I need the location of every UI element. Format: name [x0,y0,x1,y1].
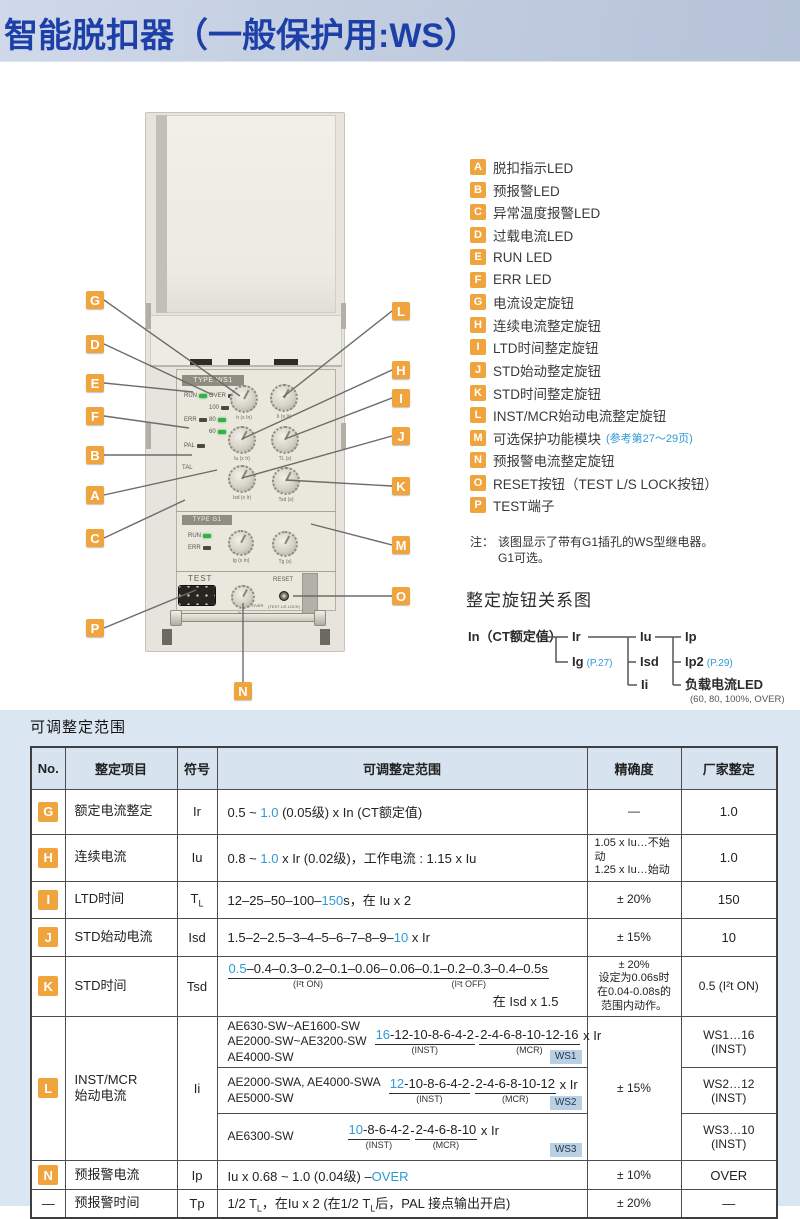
callout-chip-c: C [86,529,104,547]
knob-isd [228,465,256,493]
row-tp-accuracy: ± 20% [587,1190,681,1218]
legend-item-c: C异常温度报警LED [470,203,600,221]
g1-led-err: ERR [188,545,211,551]
side-notch [146,303,151,329]
type-g1-label: TYPE G1 [182,515,232,525]
table-row-j: J STD始动电流 Isd 1.5–2–2.5–3–4–5–6–7–8–9–10… [31,918,777,956]
row-h-no: H [31,834,65,881]
g1-err-led-indicator [203,546,211,550]
callout-chip-k: K [392,477,410,495]
table-row-i: I LTD时间 TL 12–25–50–100–150s，在 Iu x 2 ± … [31,881,777,918]
legend-label: LTD时间整定旋钮 [493,337,599,357]
legend-item-b: B预报警LED [470,181,560,199]
row-h-accuracy: 1.05 x Iu…不始动1.25 x Iu…始动 [587,834,681,881]
legend-label: ERR LED [493,272,552,287]
row-k-symbol: Tsd [177,956,217,1016]
row-tp-range: 1/2 TL，在Iu x 2 (在1/2 TL后，PAL 接点输出开启) [217,1190,587,1218]
legend-label: STD时间整定旋钮 [493,383,601,403]
settings-table-section: 可调整定范围 No. 整定项目 符号 可调整定范围 精确度 厂家整定 G 额定电… [0,710,800,1206]
row-j-symbol: Isd [177,918,217,956]
device-cover-shadow [156,115,167,313]
table-row-n: N 预报警电流 Ip Iu x 0.68 ~ 1.0 (0.04级) –OVER… [31,1161,777,1190]
led-err: ERR [184,417,207,423]
legend-chip-j: J [470,362,486,378]
vent-slot [228,359,250,365]
legend-chip-h: H [470,317,486,333]
legend-label: RUN LED [493,250,552,265]
legend-label: INST/MCR始动电流整定旋钮 [493,405,666,425]
legend-item-l: LINST/MCR始动电流整定旋钮 [470,406,666,424]
diagram-node-isd: Isd [640,654,659,670]
knob-ii [270,384,298,412]
callout-chip-o: O [392,587,410,605]
legend-chip-n: N [470,452,486,468]
led-100: 100 [209,405,229,411]
table-row-h: H 连续电流 Iu 0.8 ~ 1.0 x Ir (0.02级)，工作电流 : … [31,834,777,881]
legend-label: RESET按钮（TEST L/S LOCK按钮） [493,473,718,493]
page-header: 智能脱扣器（一般保护用:WS） [0,0,800,62]
legend-item-p: PTEST端子 [470,496,555,514]
handle-cap [170,610,182,626]
row-tp-factory: — [681,1190,777,1218]
knob-tl [271,426,299,454]
row-n-range: Iu x 0.68 ~ 1.0 (0.04级) –OVER [217,1161,587,1190]
knob-iu [228,426,256,454]
row-i-symbol: TL [177,881,217,918]
col-header-range: 可调整定范围 [217,747,587,789]
legend-item-i: ILTD时间整定旋钮 [470,338,599,356]
note-line1: 该图显示了带有G1插孔的WS型继电器。 [498,534,713,550]
tal-label: TAL [182,465,193,471]
callout-chip-a: A [86,486,104,504]
diagram-node-ip: Ip [685,629,697,645]
note-label: 注： [470,534,494,550]
row-n-no: N [31,1161,65,1190]
legend-item-d: D过载电流LED [470,226,573,244]
test-label: TEST [188,574,212,583]
side-notch [341,423,346,449]
legend-label: STD始动整定旋钮 [493,360,601,380]
legend-item-a: A脱扣指示LED [470,158,573,176]
knob-tg-label: Tg (s) [263,559,307,565]
diagram-node-iu: Iu [640,629,652,645]
diagram-node-ig: Ig(P.27) [572,654,613,672]
legend-item-o: ORESET按钮（TEST L/S LOCK按钮） [470,474,718,492]
legend-chip-f: F [470,272,486,288]
legend-chip-g: G [470,294,486,310]
row-k-item: STD时间 [65,956,177,1016]
diagram-node-in: In（CT额定值） [468,629,562,645]
led-run: RUN [184,393,207,399]
legend-chip-c: C [470,204,486,220]
side-notch [146,423,151,449]
model-list-ws2: AE2000-SWA, AE4000-SWAAE5000-SW [228,1075,381,1106]
row-h-item: 连续电流 [65,834,177,881]
callout-chip-m: M [392,536,410,554]
knob-tg [272,531,298,557]
led-60: 60 [209,429,226,435]
row-l-no: L [31,1016,65,1161]
legend-item-e: ERUN LED [470,248,552,266]
row-i-item: LTD时间 [65,881,177,918]
callout-chip-i: I [392,389,410,407]
row-tp-symbol: Tp [177,1190,217,1218]
diagram-node-ip2: Ip2(P.29) [685,654,733,672]
legend-item-n: N预报警电流整定旋钮 [470,451,615,469]
device-handle [176,613,322,622]
col-header-accuracy: 精确度 [587,747,681,789]
legend-label: 预报警电流整定旋钮 [493,450,615,470]
callout-chip-h: H [392,361,410,379]
legend-chip-o: O [470,475,486,491]
type-ws1-label: TYPE WS1 [182,375,244,386]
legend-label: 可选保护功能模块 [493,428,601,448]
knob-ii-label: Ii (x Ir) [262,414,306,420]
row-i-factory: 150 [681,881,777,918]
led-100-indicator [221,406,229,410]
g1-led-run: RUN [188,533,211,539]
test-connector [178,585,216,606]
settings-table: No. 整定项目 符号 可调整定范围 精确度 厂家整定 G 额定电流整定 Ir … [30,746,778,1219]
callout-chip-p: P [86,619,104,637]
k-range-note: 在 Isd x 1.5 [228,991,583,1010]
col-header-item: 整定项目 [65,747,177,789]
callout-chip-e: E [86,374,104,392]
row-g-symbol: Ir [177,789,217,834]
row-l-item: INST/MCR始动电流 [65,1016,177,1161]
legend-label: 电流设定旋钮 [493,292,574,312]
reset-label: RESET [273,577,293,583]
k-range-group-i2t-off: 0.06–0.1–0.2–0.3–0.4–0.5s(I²t OFF) [389,962,549,990]
row-h-range: 0.8 ~ 1.0 x Ir (0.02级)，工作电流 : 1.15 x Iu [217,834,587,881]
diagram-node-ii: Ii [641,677,648,693]
knob-isd-label: Isd (x Ir) [220,495,264,501]
callout-chip-d: D [86,335,104,353]
ws3-tag: WS3 [550,1143,582,1157]
callout-lines [0,62,800,710]
row-k-range: 0.5–0.4–0.3–0.2–0.1–0.06–(I²t ON)0.06–0.… [217,956,587,1016]
row-j-no: J [31,918,65,956]
legend-item-j: JSTD始动整定旋钮 [470,361,601,379]
diagram-node-load-led: 负载电流LED [685,677,763,693]
legend-label: 过载电流LED [493,225,573,245]
row-n-symbol: Ip [177,1161,217,1190]
col-header-no: No. [31,747,65,789]
row-h-symbol: Iu [177,834,217,881]
row-h-factory: 1.0 [681,834,777,881]
row-tp-no: — [31,1190,65,1218]
legend-item-m: M可选保护功能模块(参考第27～29页) [470,429,693,447]
legend-item-f: FERR LED [470,271,552,289]
device-cover [156,115,336,313]
row-n-item: 预报警电流 [65,1161,177,1190]
panel-divider [176,571,336,572]
row-j-range: 1.5–2–2.5–3–4–5–6–7–8–9–10 x Ir [217,918,587,956]
callout-chip-j: J [392,427,410,445]
row-k-accuracy: ± 20%设定为0.06s时 在0.04-0.08s的范围内动作。 [587,956,681,1016]
row-n-factory: OVER [681,1161,777,1190]
reset-sub-label: (TEST L/S LOCK) [268,604,300,609]
row-i-accuracy: ± 20% [587,881,681,918]
diagram-led-note: (60, 80, 100%, OVER) [690,694,785,705]
legend-chip-m: M [470,430,486,446]
note-line2: G1可选。 [498,550,550,566]
diagram-node-ir: Ir [572,629,581,645]
col-header-factory: 厂家整定 [681,747,777,789]
knob-tl-label: TL (s) [263,456,307,462]
legend-item-h: H连续电流整定旋钮 [470,316,601,334]
knob-ig [228,530,254,556]
row-j-item: STD始动电流 [65,918,177,956]
page-ref-p29[interactable]: (P.29) [707,658,733,669]
device-illustration: TYPE WS1 RUN OVER 100 ERR 80 60 PAL TAL … [145,112,345,652]
handle-cap [314,610,326,626]
figure-section: TYPE WS1 RUN OVER 100 ERR 80 60 PAL TAL … [0,62,800,710]
pal-led-indicator [197,444,205,448]
led-60-indicator [218,430,226,434]
legend-item-g: G电流设定旋钮 [470,293,574,311]
legend-chip-d: D [470,227,486,243]
col-header-symbol: 符号 [177,747,217,789]
err-led-indicator [199,418,207,422]
knob-iu-label: Iu (x Ir) [220,456,264,462]
legend-label: 异常温度报警LED [493,202,600,222]
row-g-range: 0.5 ~ 1.0 (0.05级) x In (CT额定值) [217,789,587,834]
side-notch [341,303,346,329]
legend-label: 预报警LED [493,180,560,200]
run-led-indicator [199,394,207,398]
row-g-item: 额定电流整定 [65,789,177,834]
legend-chip-p: P [470,497,486,513]
row-l-range-ws1: AE630-SW~AE1600-SWAE2000-SW~AE3200-SWAE4… [217,1016,587,1068]
led-pal: PAL [184,443,205,449]
callout-chip-l: L [392,302,410,320]
ws2-tag: WS2 [550,1096,582,1110]
row-l-range-ws2: AE2000-SWA, AE4000-SWAAE5000-SW 12-10-8-… [217,1068,587,1114]
knob-ir-label: Ir (x In) [222,415,266,421]
legend-page-ref[interactable]: (参考第27～29页) [606,430,693,446]
table-section-title: 可调整定范围 [30,716,126,737]
row-i-range: 12–25–50–100–150s，在 Iu x 2 [217,881,587,918]
over-mark: OVER [252,603,263,608]
page-ref-p27[interactable]: (P.27) [587,658,613,669]
row-l-symbol: Ii [177,1016,217,1161]
device-foot [320,629,330,645]
knob-ir [230,385,258,413]
table-row-g: G 额定电流整定 Ir 0.5 ~ 1.0 (0.05级) x In (CT额定… [31,789,777,834]
vent-slot [274,359,298,365]
row-k-no: K [31,956,65,1016]
k-range-group-i2t-on: 0.5–0.4–0.3–0.2–0.1–0.06–(I²t ON) [228,962,389,990]
callout-chip-f: F [86,407,104,425]
callout-chip-n: N [234,682,252,700]
diagram-title: 整定旋钮关系图 [466,586,592,611]
legend-chip-k: K [470,385,486,401]
panel-divider [176,511,336,512]
row-g-factory: 1.0 [681,789,777,834]
row-tp-item: 预报警时间 [65,1190,177,1218]
row-n-accuracy: ± 10% [587,1161,681,1190]
page-title: 智能脱扣器（一般保护用:WS） [4,8,478,57]
table-row-l-sub1: L INST/MCR始动电流 Ii AE630-SW~AE1600-SWAE20… [31,1016,777,1068]
reset-button [279,591,289,601]
knob-tsd-label: Tsd (s) [264,497,308,503]
legend-item-k: KSTD时间整定旋钮 [470,384,601,402]
row-l-factory-ws1: WS1…16 (INST) [681,1016,777,1068]
legend-chip-i: I [470,339,486,355]
row-l-factory-ws2: WS2…12 (INST) [681,1068,777,1114]
model-list-ws1: AE630-SW~AE1600-SWAE2000-SW~AE3200-SWAE4… [228,1019,367,1066]
legend-label: TEST端子 [493,495,555,515]
legend-label: 连续电流整定旋钮 [493,315,601,335]
row-j-factory: 10 [681,918,777,956]
ws1-tag: WS1 [550,1050,582,1064]
row-l-range-ws3: AE6300-SW 10-8-6-4-2(INST)-2-4-6-8-10(MC… [217,1114,587,1161]
table-row-tp: — 预报警时间 Tp 1/2 TL，在Iu x 2 (在1/2 TL后，PAL … [31,1190,777,1218]
legend-chip-a: A [470,159,486,175]
row-i-no: I [31,881,65,918]
row-l-factory-ws3: WS3…10 (INST) [681,1114,777,1161]
legend-chip-b: B [470,182,486,198]
legend-chip-e: E [470,249,486,265]
knob-ig-label: Ig (x In) [219,558,263,564]
model-list-ws3: AE6300-SW [228,1129,294,1145]
row-j-accuracy: ± 15% [587,918,681,956]
vent-slot [190,359,212,365]
callout-chip-g: G [86,291,104,309]
table-header-row: No. 整定项目 符号 可调整定范围 精确度 厂家整定 [31,747,777,789]
callout-chip-b: B [86,446,104,464]
row-g-no: G [31,789,65,834]
row-k-factory: 0.5 (I²t ON) [681,956,777,1016]
legend-chip-l: L [470,407,486,423]
device-foot [162,629,172,645]
g1-run-led-indicator [203,534,211,538]
table-row-k: K STD时间 Tsd 0.5–0.4–0.3–0.2–0.1–0.06–(I²… [31,956,777,1016]
legend-label: 脱扣指示LED [493,157,573,177]
row-g-accuracy: — [587,789,681,834]
knob-tsd [272,467,300,495]
